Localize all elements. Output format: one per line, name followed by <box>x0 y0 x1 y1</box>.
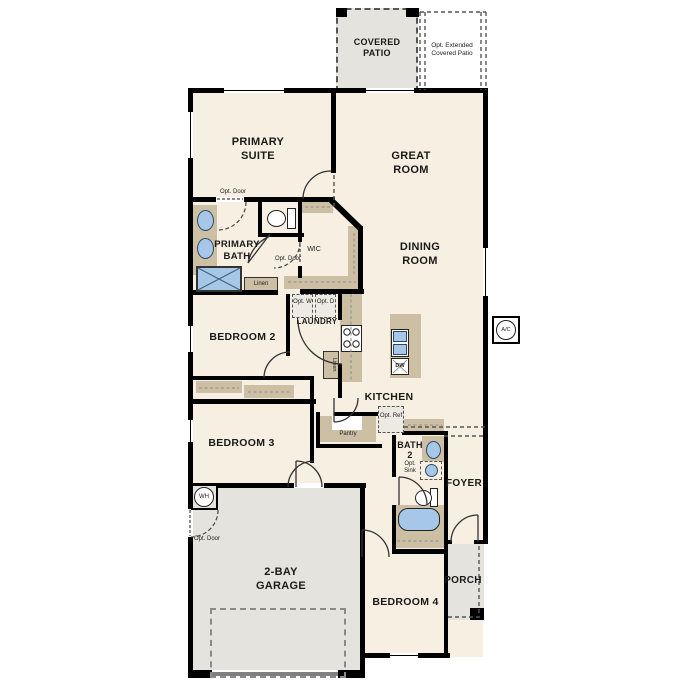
opt-door-bath-label: Opt. Door <box>211 189 255 196</box>
door-arc <box>399 477 427 505</box>
bedroom2-label: BEDROOM 2 <box>195 331 290 344</box>
laundry-label: LAUNDRY <box>289 317 345 327</box>
door-arc <box>264 352 290 378</box>
linen-hall-label: Linen <box>325 353 337 377</box>
covered-patio-label: COVERED PATIO <box>347 37 407 60</box>
kitchen-label: KITCHEN <box>354 391 424 404</box>
pantry-label: Pantry <box>328 431 368 438</box>
opt-door-garage-label: Opt. Door <box>194 536 220 543</box>
dw-label: DW <box>391 363 409 370</box>
door-arc <box>303 171 331 199</box>
opt-fridge-box: Opt. Ref <box>378 406 404 433</box>
front-door-arc <box>451 515 478 542</box>
opt-door-arc <box>218 202 246 230</box>
opt-dryer-box: Opt. D <box>315 294 336 318</box>
foyer-label: FOYER <box>442 478 486 491</box>
opt-washer-box: Opt. W <box>292 294 313 318</box>
opt-door-wic-label: Opt. Door <box>274 256 302 263</box>
primary-bath-label: PRIMARY BATH <box>207 239 267 263</box>
wic-label: WIC <box>300 246 328 254</box>
bedroom3-label: BEDROOM 3 <box>194 437 289 450</box>
linen-bath-label: Linen <box>244 281 278 288</box>
linework-overlay <box>0 0 687 687</box>
opt-sink-label: Opt. Sink <box>398 461 422 475</box>
dashed-lines <box>334 12 486 617</box>
ext-patio-label: Opt. Extended Covered Patio <box>424 42 480 58</box>
primary-suite-label: PRIMARY SUITE <box>223 136 293 164</box>
door-arc <box>362 530 389 557</box>
opt-door-arc <box>191 510 218 537</box>
porch-label: PORCH <box>441 575 485 588</box>
dining-room-label: DINING ROOM <box>392 241 448 269</box>
floor-plan: WH A/C <box>0 0 687 687</box>
bath2-label: BATH 2 <box>395 441 425 461</box>
angled-wall <box>331 200 361 229</box>
shower-x <box>198 268 240 290</box>
garage-label: 2-BAY GARAGE <box>251 566 311 594</box>
great-room-label: GREAT ROOM <box>383 150 439 178</box>
opt-door-arc <box>274 242 300 268</box>
bedroom4-label: BEDROOM 4 <box>358 596 453 609</box>
